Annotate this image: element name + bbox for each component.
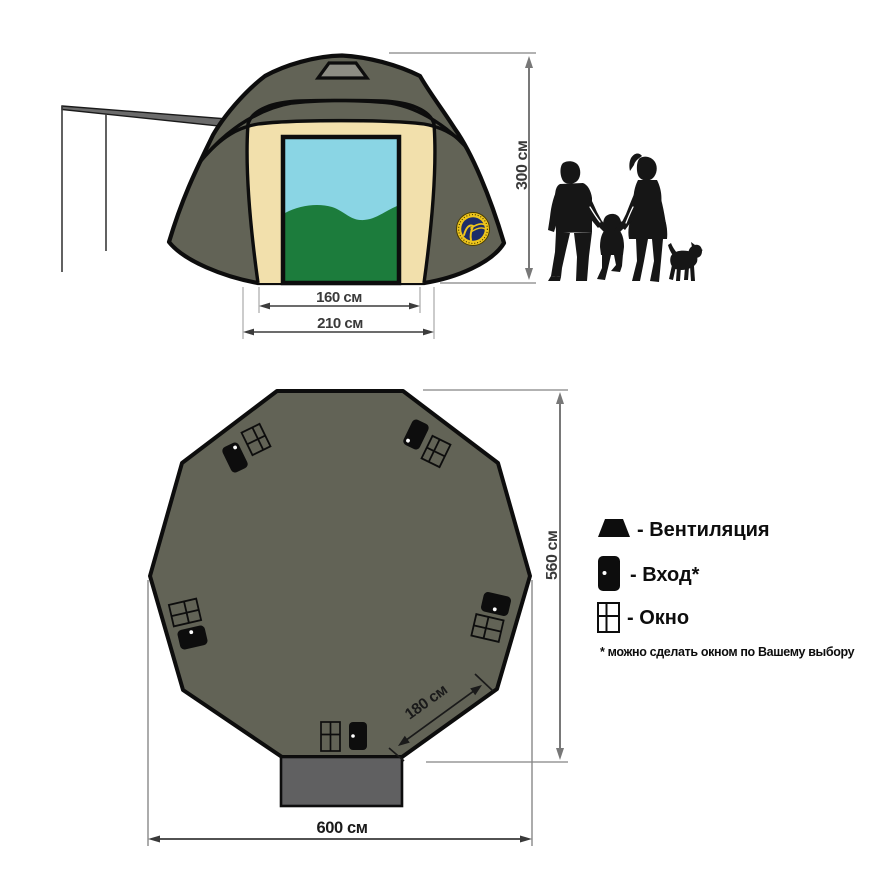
svg-text:- Вентиляция: - Вентиляция [637, 519, 770, 541]
svg-text:600 см: 600 см [316, 819, 367, 837]
svg-text:560 см: 560 см [544, 531, 561, 580]
svg-text:160 см: 160 см [316, 289, 362, 306]
svg-text:300 см: 300 см [514, 141, 531, 190]
svg-text:- Окно: - Окно [627, 607, 689, 629]
svg-text:- Вход*: - Вход* [630, 564, 700, 586]
svg-text:210 см: 210 см [317, 315, 363, 332]
svg-text:* можно сделать окном по Вашем: * можно сделать окном по Вашему выбору [600, 645, 855, 659]
